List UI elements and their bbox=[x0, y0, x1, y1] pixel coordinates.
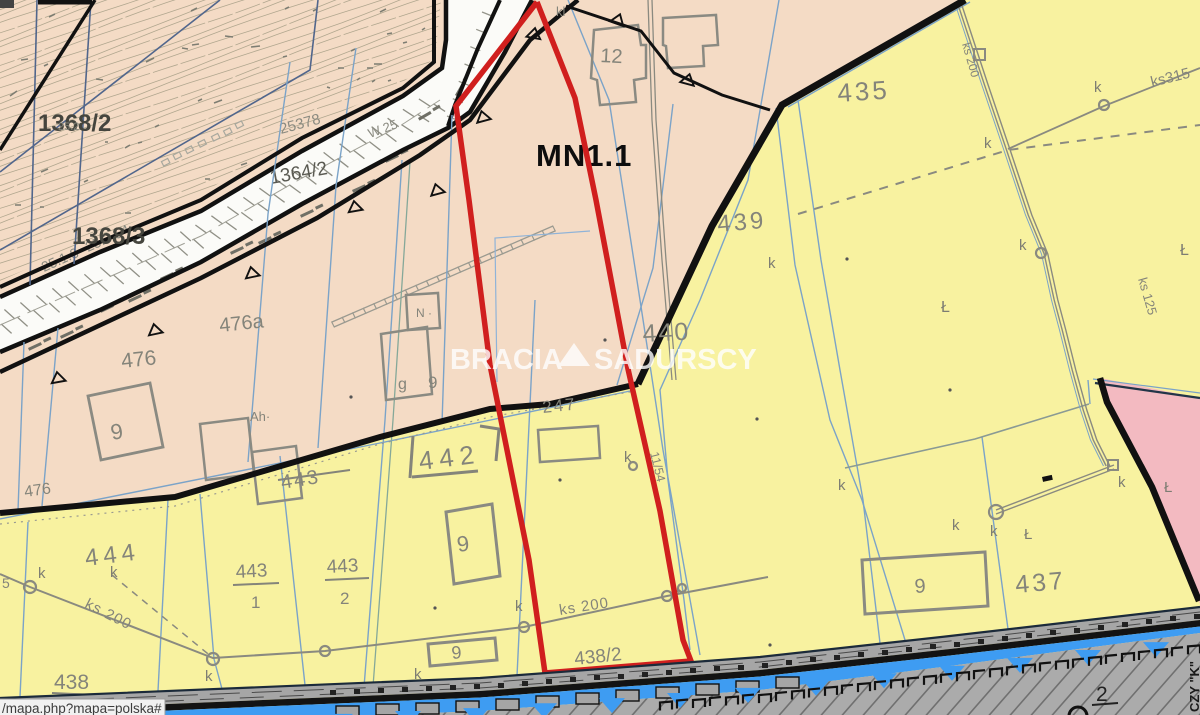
svg-text:k: k bbox=[838, 477, 846, 494]
svg-text:9: 9 bbox=[451, 642, 463, 663]
svg-text:2: 2 bbox=[340, 589, 349, 608]
svg-text:k: k bbox=[1019, 237, 1027, 254]
svg-text:Ł: Ł bbox=[1164, 479, 1172, 496]
svg-text:438: 438 bbox=[54, 671, 89, 694]
svg-text:CZY "K": CZY "K" bbox=[1187, 661, 1200, 712]
svg-text:1368/3: 1368/3 bbox=[72, 223, 145, 250]
svg-text:1: 1 bbox=[251, 593, 260, 612]
svg-text:5: 5 bbox=[2, 575, 10, 591]
svg-text:2: 2 bbox=[1096, 683, 1108, 706]
svg-text:25.2: 25.2 bbox=[58, 121, 79, 133]
svg-text:435: 435 bbox=[836, 74, 890, 108]
svg-text:k: k bbox=[515, 598, 523, 615]
svg-text:12: 12 bbox=[600, 45, 623, 68]
svg-text:SADURSCY: SADURSCY bbox=[594, 344, 757, 376]
svg-text:k: k bbox=[984, 135, 992, 152]
svg-text:k: k bbox=[1118, 474, 1126, 491]
svg-text:k: k bbox=[624, 449, 632, 466]
svg-text:k: k bbox=[990, 523, 998, 540]
svg-text:k: k bbox=[1094, 79, 1102, 96]
svg-text:k: k bbox=[768, 255, 776, 272]
svg-text:437: 437 bbox=[1014, 567, 1067, 599]
svg-text:9: 9 bbox=[428, 373, 437, 392]
svg-text:k: k bbox=[38, 565, 46, 582]
svg-text:Ł: Ł bbox=[941, 299, 950, 316]
svg-text:443: 443 bbox=[235, 560, 268, 583]
svg-text:kl: kl bbox=[556, 4, 566, 19]
svg-text:247: 247 bbox=[541, 394, 577, 416]
svg-text:Ł: Ł bbox=[1024, 526, 1032, 543]
svg-text:k: k bbox=[110, 564, 118, 581]
svg-text:443: 443 bbox=[326, 555, 359, 578]
svg-text:476: 476 bbox=[120, 346, 157, 373]
svg-text:g: g bbox=[398, 376, 407, 393]
svg-text:BRACIA: BRACIA bbox=[450, 344, 563, 376]
svg-text:Ah·: Ah· bbox=[250, 409, 270, 424]
svg-text:9: 9 bbox=[914, 575, 927, 598]
svg-text:439: 439 bbox=[716, 207, 767, 238]
svg-text:N ·: N · bbox=[416, 306, 432, 320]
svg-text:Ł: Ł bbox=[1180, 242, 1189, 259]
svg-text:k: k bbox=[952, 517, 960, 534]
svg-text:/mapa.php?mapa=polska#: /mapa.php?mapa=polska# bbox=[2, 701, 162, 715]
svg-text:k: k bbox=[205, 668, 213, 685]
